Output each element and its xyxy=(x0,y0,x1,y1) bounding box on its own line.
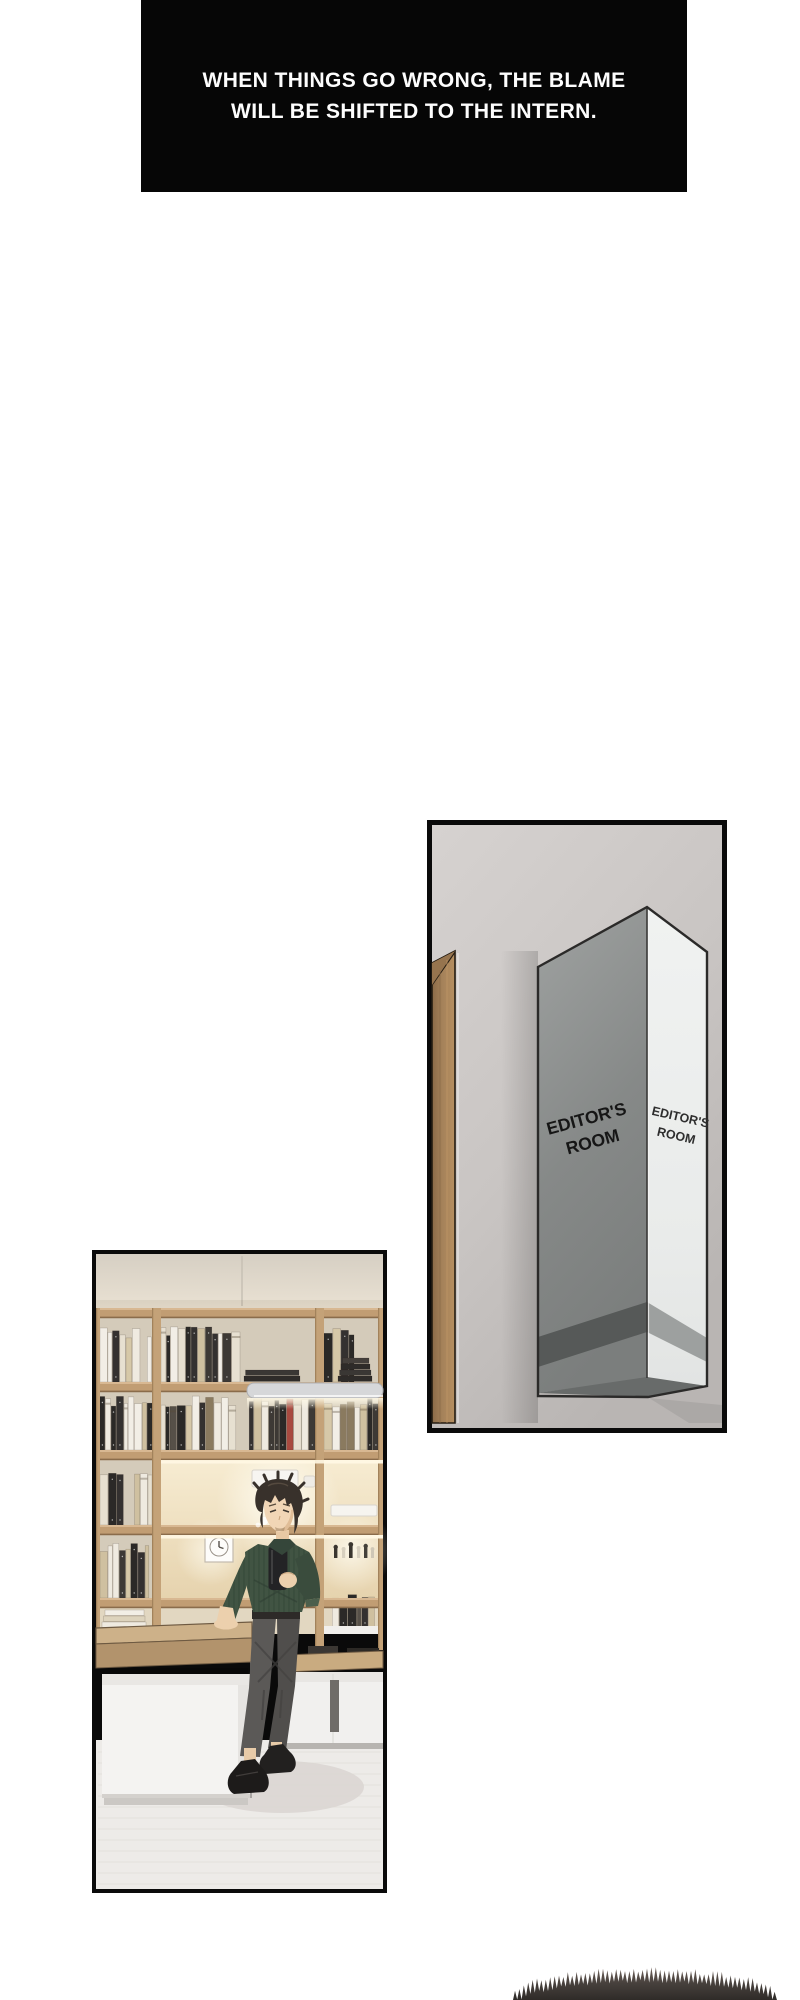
desk-cabinet xyxy=(102,1674,250,1798)
caption-line-1: WHEN THINGS GO WRONG, THE BLAME xyxy=(202,65,625,96)
library-illustration xyxy=(92,1250,387,1893)
door-frame xyxy=(432,951,458,1423)
right-ledge xyxy=(324,1626,383,1634)
desk xyxy=(96,1622,252,1805)
bottom-hair-overlay xyxy=(513,1966,777,2000)
editors-room-illustration: EDITOR'S ROOM EDITOR'S ROOM xyxy=(427,820,727,1433)
caption-box: WHEN THINGS GO WRONG, THE BLAME WILL BE … xyxy=(141,0,687,192)
hand-on-desk xyxy=(214,1619,238,1630)
small-box xyxy=(304,1476,315,1487)
sign-wall-shadow xyxy=(501,951,538,1423)
editors-room-panel: EDITOR'S ROOM EDITOR'S ROOM xyxy=(427,820,727,1433)
glint xyxy=(256,1523,261,1528)
side-counter xyxy=(285,1646,383,1749)
library-panel xyxy=(92,1250,387,1893)
light-bar xyxy=(247,1383,383,1409)
comic-page: WHEN THINGS GO WRONG, THE BLAME WILL BE … xyxy=(0,0,800,2000)
editors-room-sign: EDITOR'S ROOM EDITOR'S ROOM xyxy=(538,907,710,1397)
caption-line-2: WILL BE SHIFTED TO THE INTERN. xyxy=(231,96,597,127)
white-tray xyxy=(331,1505,377,1516)
counter-post xyxy=(330,1680,339,1732)
spiky-hair-shape xyxy=(513,1967,777,2000)
